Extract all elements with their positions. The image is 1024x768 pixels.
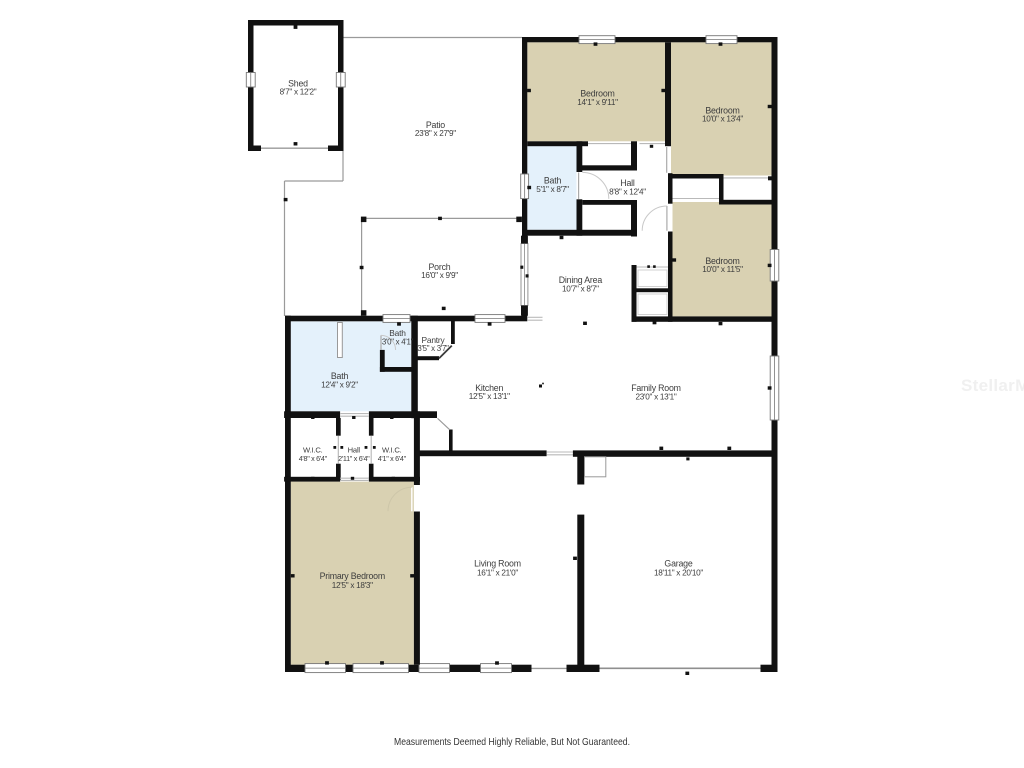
svg-text:16'1" x 21'0": 16'1" x 21'0" [477, 569, 518, 578]
svg-text:18'11" x 20'10": 18'11" x 20'10" [654, 569, 703, 578]
svg-text:12'5" x 13'1": 12'5" x 13'1" [469, 392, 510, 401]
svg-text:5'1" x 8'7": 5'1" x 8'7" [536, 185, 569, 194]
svg-text:10'7" x 8'7": 10'7" x 8'7" [562, 285, 599, 294]
svg-text:16'0" x 9'9": 16'0" x 9'9" [421, 271, 458, 280]
svg-text:4'8" x 6'4": 4'8" x 6'4" [299, 454, 328, 463]
svg-text:10'0" x 13'4": 10'0" x 13'4" [702, 115, 743, 124]
svg-text:8'7" x 12'2": 8'7" x 12'2" [280, 88, 317, 97]
svg-text:14'1" x 9'11": 14'1" x 9'11" [577, 98, 618, 107]
svg-text:Garage: Garage [664, 558, 692, 568]
svg-text:23'0" x 13'1": 23'0" x 13'1" [635, 393, 676, 402]
svg-text:Primary Bedroom: Primary Bedroom [320, 571, 385, 581]
svg-text:12'4" x 9'2": 12'4" x 9'2" [321, 381, 358, 390]
svg-text:Living Room: Living Room [474, 558, 521, 568]
svg-text:2'11" x 6'4": 2'11" x 6'4" [338, 454, 370, 463]
svg-text:8'8" x 12'4": 8'8" x 12'4" [609, 187, 646, 196]
svg-text:4'1" x 6'4": 4'1" x 6'4" [378, 454, 407, 463]
svg-text:3'5" x 3'7": 3'5" x 3'7" [417, 344, 449, 353]
svg-text:3'0" x 4'1": 3'0" x 4'1" [382, 338, 414, 347]
svg-text:23'8" x 27'9": 23'8" x 27'9" [415, 129, 456, 138]
svg-text:12'5" x 18'3": 12'5" x 18'3" [332, 581, 373, 590]
svg-text:10'0" x 11'5": 10'0" x 11'5" [702, 265, 743, 274]
svg-text:StellarMLS: StellarMLS [961, 376, 1024, 395]
svg-text:Measurements Deemed Highly Rel: Measurements Deemed Highly Reliable, But… [394, 737, 630, 748]
svg-text:Bath: Bath [389, 328, 406, 338]
